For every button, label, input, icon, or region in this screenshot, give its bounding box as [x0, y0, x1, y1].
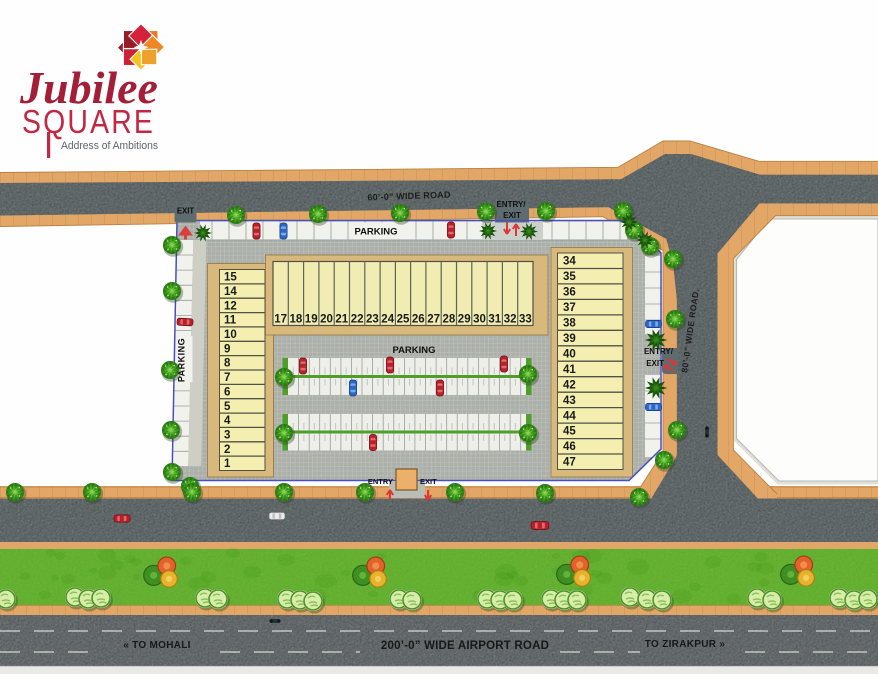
- svg-text:10: 10: [224, 329, 237, 341]
- svg-text:36: 36: [563, 287, 576, 299]
- svg-text:11: 11: [224, 315, 237, 327]
- svg-text:34: 34: [563, 256, 576, 268]
- svg-text:15: 15: [224, 272, 237, 284]
- svg-text:PARKING: PARKING: [354, 227, 397, 238]
- svg-text:« TO MOHALI: « TO MOHALI: [123, 640, 191, 651]
- svg-text:39: 39: [563, 333, 576, 345]
- svg-text:40: 40: [563, 348, 576, 360]
- svg-text:25: 25: [397, 314, 410, 326]
- svg-text:EXIT: EXIT: [420, 477, 437, 486]
- svg-text:1: 1: [224, 458, 231, 470]
- svg-text:Address of Ambitions: Address of Ambitions: [61, 140, 158, 152]
- svg-text:PARKING: PARKING: [392, 345, 435, 356]
- svg-text:44: 44: [563, 410, 576, 422]
- svg-text:17: 17: [274, 314, 287, 326]
- svg-text:200’-0” WIDE AIRPORT ROAD: 200’-0” WIDE AIRPORT ROAD: [381, 640, 549, 652]
- svg-text:42: 42: [563, 379, 576, 391]
- svg-text:ENTRY/: ENTRY/: [496, 200, 526, 209]
- svg-text:47: 47: [563, 457, 576, 469]
- svg-text:3: 3: [224, 430, 230, 442]
- svg-text:31: 31: [488, 314, 501, 326]
- svg-text:EXIT: EXIT: [646, 359, 664, 368]
- svg-text:20: 20: [320, 314, 333, 326]
- svg-text:8: 8: [224, 358, 231, 370]
- svg-text:2: 2: [224, 444, 230, 456]
- svg-text:23: 23: [366, 314, 379, 326]
- svg-text:5: 5: [224, 401, 231, 413]
- svg-text:4: 4: [224, 415, 231, 427]
- svg-text:18: 18: [290, 314, 303, 326]
- svg-text:22: 22: [351, 314, 364, 326]
- svg-text:32: 32: [504, 314, 517, 326]
- svg-text:38: 38: [563, 318, 576, 330]
- svg-text:30: 30: [473, 314, 486, 326]
- svg-text:14: 14: [224, 286, 237, 298]
- svg-text:TO ZIRAKPUR »: TO ZIRAKPUR »: [645, 639, 726, 650]
- svg-text:37: 37: [563, 302, 576, 314]
- svg-text:43: 43: [563, 395, 576, 407]
- svg-text:41: 41: [563, 364, 576, 376]
- svg-text:28: 28: [443, 314, 456, 326]
- svg-text:12: 12: [224, 300, 237, 312]
- svg-text:ENTRY: ENTRY: [368, 477, 393, 486]
- svg-text:24: 24: [381, 314, 394, 326]
- svg-text:EXIT: EXIT: [177, 207, 195, 216]
- svg-text:7: 7: [224, 372, 230, 384]
- svg-text:19: 19: [305, 314, 318, 326]
- svg-text:9: 9: [224, 343, 230, 355]
- svg-text:46: 46: [563, 441, 576, 453]
- svg-text:35: 35: [563, 271, 576, 283]
- svg-text:SQUARE: SQUARE: [22, 103, 155, 140]
- svg-text:45: 45: [563, 426, 576, 438]
- svg-text:33: 33: [519, 314, 532, 326]
- svg-text:EXIT: EXIT: [503, 211, 521, 220]
- svg-text:6: 6: [224, 386, 230, 398]
- svg-text:21: 21: [335, 314, 348, 326]
- svg-text:29: 29: [458, 314, 471, 326]
- svg-text:27: 27: [427, 314, 440, 326]
- svg-text:26: 26: [412, 314, 425, 326]
